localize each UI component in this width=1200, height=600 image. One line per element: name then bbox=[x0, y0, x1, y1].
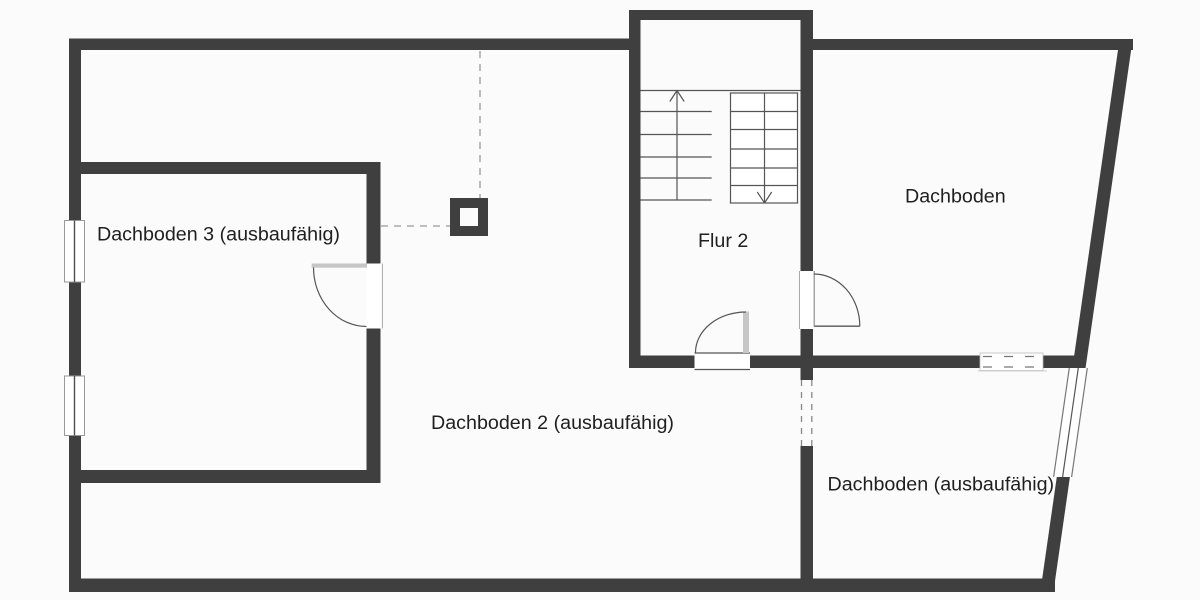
svg-text:Dachboden (ausbaufähig): Dachboden (ausbaufähig) bbox=[828, 474, 1055, 496]
svg-text:Dachboden 3 (ausbaufähig): Dachboden 3 (ausbaufähig) bbox=[97, 224, 340, 246]
svg-text:Dachboden 2 (ausbaufähig): Dachboden 2 (ausbaufähig) bbox=[431, 412, 674, 434]
svg-text:Dachboden: Dachboden bbox=[905, 186, 1006, 208]
svg-text:Flur 2: Flur 2 bbox=[698, 230, 748, 252]
